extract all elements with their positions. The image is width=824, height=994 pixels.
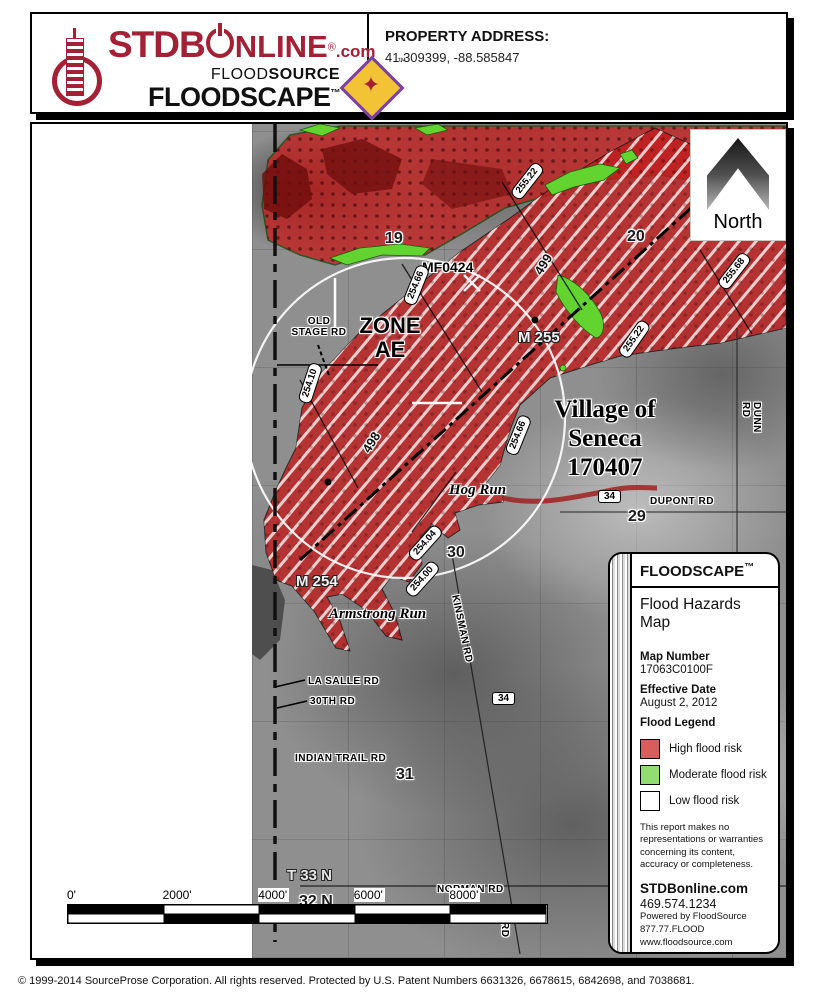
stdb-building-icon bbox=[48, 28, 106, 104]
house-compass-icon: ✦ ™ bbox=[344, 60, 398, 114]
north-label: North bbox=[691, 211, 785, 234]
legend-item-high: High flood risk bbox=[640, 739, 770, 759]
scale-tick: 6000' bbox=[354, 888, 385, 902]
effective-date-value: August 2, 2012 bbox=[640, 697, 770, 709]
legend-item-low: Low flood risk bbox=[640, 791, 770, 811]
report-header: STDBNLINE®.com FLOODSOURCE FLOODSCAPE™ ✦… bbox=[30, 12, 788, 114]
low-risk-swatch bbox=[640, 791, 660, 811]
legend-phone: 469.574.1234 bbox=[640, 897, 770, 911]
logo-cell: STDBNLINE®.com FLOODSOURCE FLOODSCAPE™ ✦… bbox=[32, 14, 367, 112]
property-address-label: PROPERTY ADDRESS: bbox=[385, 28, 786, 45]
legend-title: FLOODSCAPE™ bbox=[632, 554, 778, 588]
low-risk-label: Low flood risk bbox=[669, 795, 739, 807]
north-indicator: North bbox=[690, 129, 786, 241]
map-frame: 1920293031MF0424255.22255.68255.22254.66… bbox=[30, 122, 788, 960]
powered-phone: 877.77.FLOOD bbox=[640, 924, 770, 937]
legend-item-moderate: Moderate flood risk bbox=[640, 765, 770, 785]
floodsource-light: FLOOD bbox=[211, 66, 269, 83]
stdbonline-logo: STDBNLINE®.com bbox=[108, 24, 376, 66]
scale-segment bbox=[164, 914, 260, 923]
copyright-text: © 1999-2014 SourceProse Corporation. All… bbox=[18, 975, 695, 987]
legend-powered-by: Powered by FloodSource 877.77.FLOOD www.… bbox=[640, 911, 770, 953]
scale-bar: 0'2000'4000'6000'8000' bbox=[65, 888, 565, 930]
scale-tick: 0' bbox=[67, 888, 78, 902]
scale-segment bbox=[259, 905, 355, 914]
floodsource-bold: SOURCE bbox=[269, 66, 340, 83]
scale-tick-labels: 0'2000'4000'6000'8000' bbox=[65, 888, 565, 902]
flood-report-page: { "header": { "logo": { "stdb": "STDB", … bbox=[0, 0, 824, 994]
scale-bar-segments bbox=[67, 904, 548, 924]
scale-tick: 8000' bbox=[449, 888, 480, 902]
legend-subtitle: Flood Hazards Map bbox=[640, 596, 770, 632]
legend-column-decoration bbox=[610, 554, 632, 952]
power-symbol-icon bbox=[206, 28, 234, 58]
registered-mark: ® bbox=[328, 42, 336, 54]
scale-segment bbox=[259, 914, 355, 923]
north-arrow-icon bbox=[707, 138, 769, 210]
map-number-label: Map Number bbox=[640, 651, 770, 663]
moderate-risk-swatch bbox=[640, 765, 660, 785]
scale-segment bbox=[164, 905, 260, 914]
scale-segment bbox=[355, 914, 451, 923]
effective-date-label: Effective Date bbox=[640, 684, 770, 696]
flood-legend-label: Flood Legend bbox=[640, 717, 770, 729]
scale-tick: 4000' bbox=[258, 888, 289, 902]
powered-site: www.floodsource.com bbox=[640, 937, 770, 950]
moderate-risk-label: Moderate flood risk bbox=[669, 769, 767, 781]
logo-online-text: NLINE bbox=[235, 29, 328, 64]
powered-by-text: Powered by FloodSource bbox=[640, 911, 770, 924]
legend-site: STDBonline.com bbox=[640, 881, 770, 896]
floodscape-text: FLOODSCAPE bbox=[148, 82, 331, 112]
scale-segment bbox=[68, 914, 164, 923]
logo-stdb-text: STDB bbox=[108, 24, 205, 65]
high-risk-label: High flood risk bbox=[669, 743, 742, 755]
legend-panel: FLOODSCAPE™ Flood Hazards Map Map Number… bbox=[608, 552, 780, 954]
scale-tick: 2000' bbox=[163, 888, 194, 902]
property-address-value: 41.309399, -88.585847 bbox=[385, 50, 786, 65]
legend-disclaimer: This report makes no representations or … bbox=[640, 822, 770, 871]
scale-segment bbox=[68, 905, 164, 914]
floodscape-tm: ™ bbox=[331, 88, 341, 99]
property-address-cell: PROPERTY ADDRESS: 41.309399, -88.585847 bbox=[367, 14, 786, 112]
scale-segment bbox=[450, 914, 546, 923]
scale-segment bbox=[450, 905, 546, 914]
map-number-value: 17063C0100F bbox=[640, 664, 770, 676]
high-risk-swatch bbox=[640, 739, 660, 759]
scale-segment bbox=[355, 905, 451, 914]
floodscape-logo: FLOODSCAPE™ bbox=[124, 82, 340, 113]
